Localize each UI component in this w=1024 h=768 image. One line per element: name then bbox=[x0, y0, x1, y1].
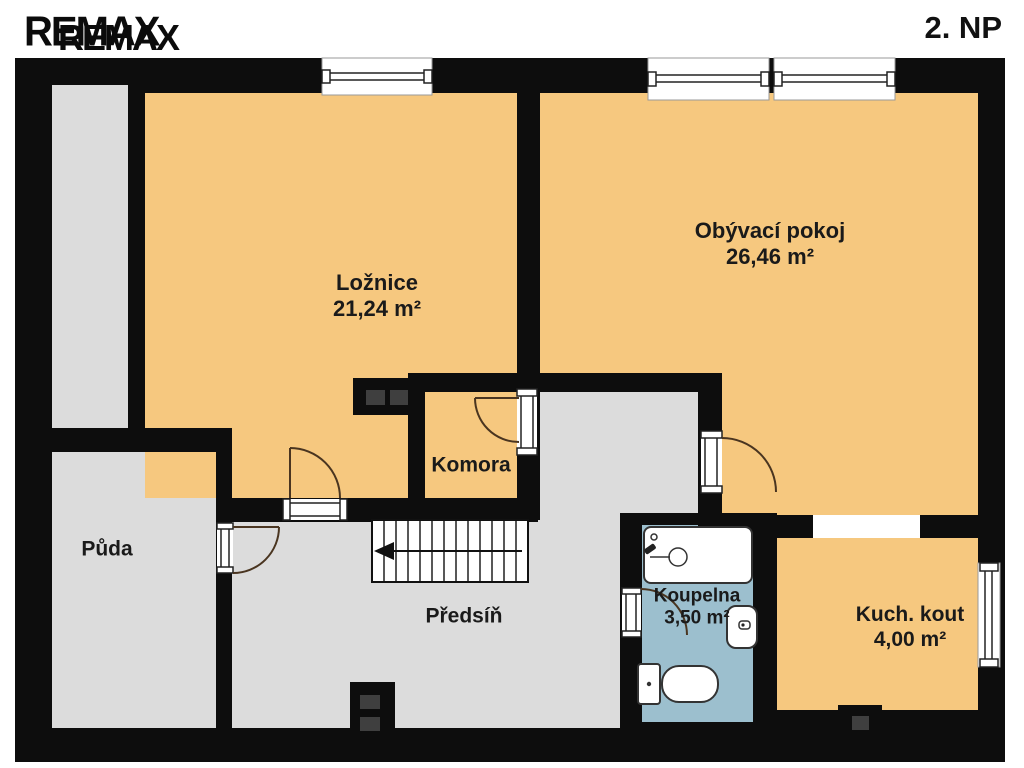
room-predsin-upper bbox=[538, 392, 698, 513]
room-label-koupelna: Koupelna 3,50 m² bbox=[654, 586, 741, 631]
door-frame-bathroom bbox=[622, 588, 641, 637]
kitchen-pass-through-opening bbox=[813, 515, 920, 538]
chimney-bedroom bbox=[353, 378, 420, 415]
toilet-icon bbox=[638, 664, 718, 704]
room-label-puda: Půda bbox=[81, 538, 132, 563]
room-name: Obývací pokoj bbox=[695, 218, 845, 243]
room-label-kuch-kout: Kuch. kout 4,00 m² bbox=[856, 603, 965, 653]
room-name: Ložnice bbox=[336, 270, 418, 295]
room-label-komora: Komora bbox=[431, 454, 510, 479]
room-area: 21,24 m² bbox=[333, 296, 421, 322]
window-living-right-icon bbox=[774, 58, 895, 100]
room-name: Komora bbox=[431, 454, 510, 477]
room-obyvaci-lower bbox=[722, 377, 978, 515]
remax-logo: REMAX REMAX bbox=[24, 8, 264, 60]
floorplan-drawing bbox=[0, 0, 1024, 768]
room-puda-upper bbox=[52, 85, 128, 428]
room-predsin-join bbox=[538, 513, 620, 522]
room-name: Koupelna bbox=[654, 586, 741, 607]
window-kitchen-icon bbox=[978, 563, 1000, 667]
room-label-loznice: Ložnice 21,24 m² bbox=[333, 270, 421, 322]
floor-label: 2. NP bbox=[924, 10, 1002, 46]
room-name: Předsíň bbox=[425, 605, 502, 628]
floorplan-page: REMAX REMAX 2. NP Ložnice 21,24 m² Obýva… bbox=[0, 0, 1024, 768]
room-floors bbox=[52, 85, 978, 728]
room-label-obyvaci-pokoj: Obývací pokoj 26,46 m² bbox=[695, 218, 845, 270]
remax-logo-ghost-text: REMAX bbox=[58, 17, 178, 59]
bathtub-icon bbox=[643, 527, 752, 583]
window-living-left-icon bbox=[648, 58, 769, 100]
room-area: 4,00 m² bbox=[856, 628, 965, 653]
room-area: 26,46 m² bbox=[695, 244, 845, 270]
room-name: Půda bbox=[81, 538, 132, 561]
room-name: Kuch. kout bbox=[856, 603, 965, 626]
window-bedroom-icon bbox=[322, 58, 432, 95]
room-label-predsin: Předsíň bbox=[425, 605, 502, 630]
door-frame-komora bbox=[517, 389, 537, 455]
room-area: 3,50 m² bbox=[654, 608, 741, 630]
door-frame-living bbox=[701, 431, 722, 493]
door-frame-bedroom bbox=[283, 499, 347, 520]
door-frame-puda bbox=[217, 523, 233, 573]
staircase-icon bbox=[372, 520, 528, 582]
